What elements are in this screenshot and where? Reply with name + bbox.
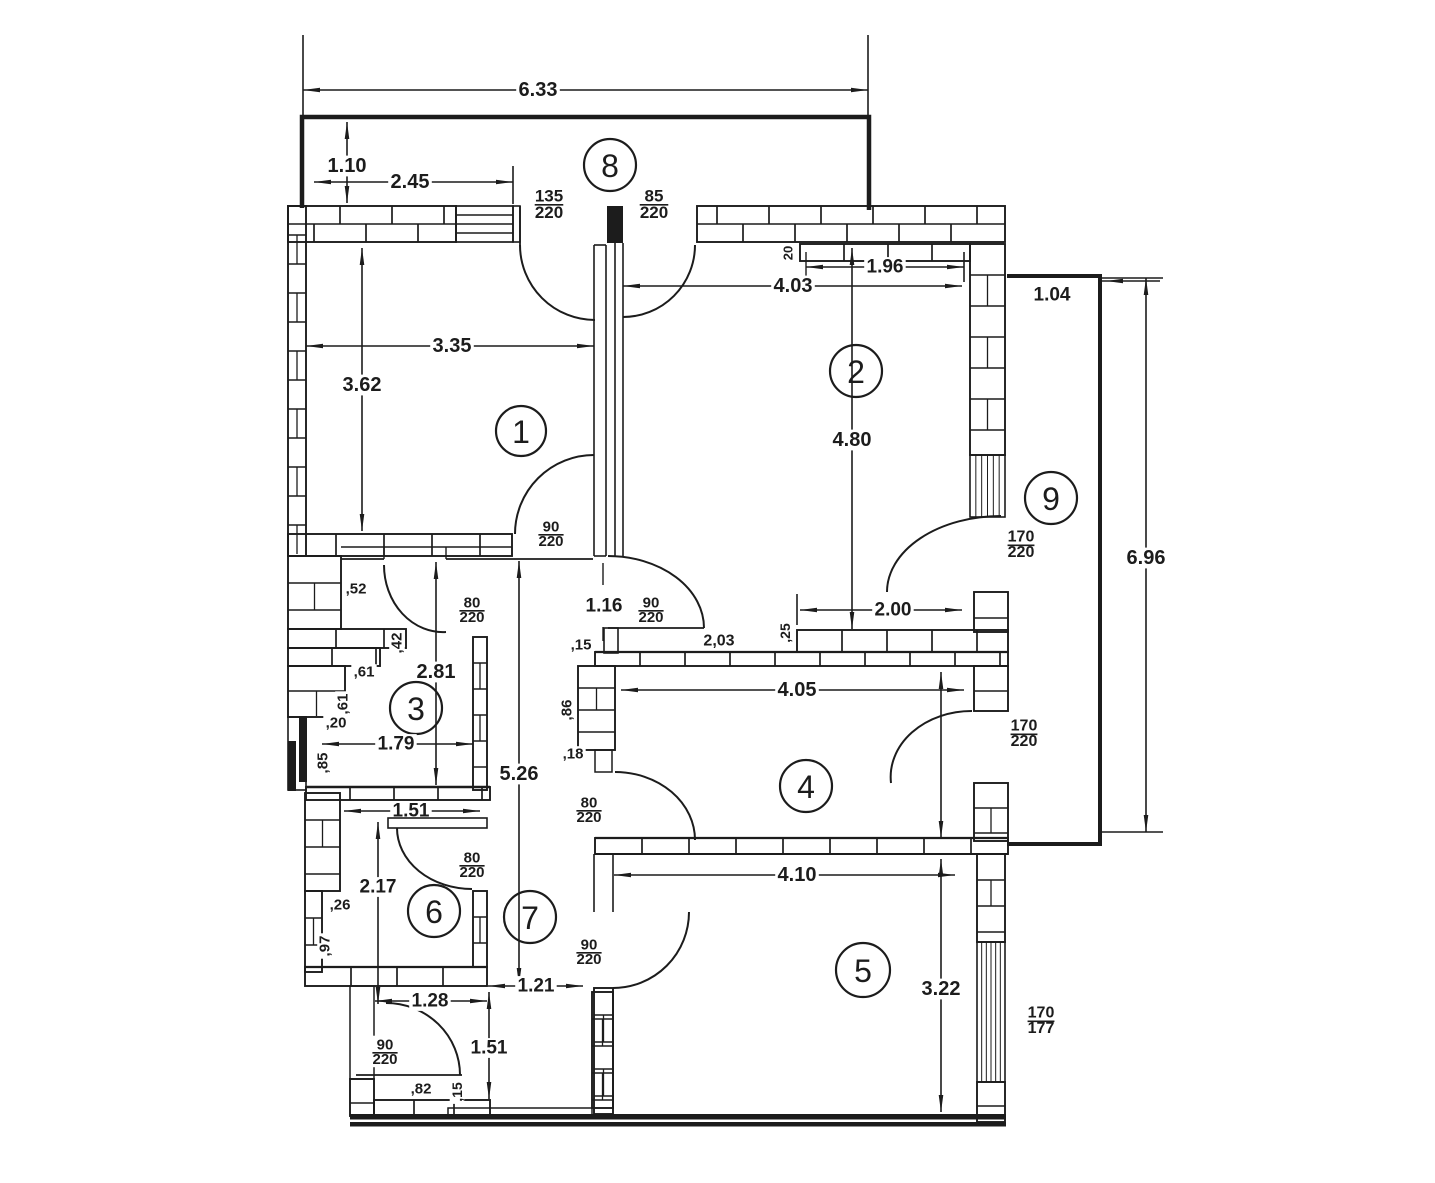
svg-text:6: 6	[425, 894, 443, 930]
svg-text:1: 1	[512, 414, 530, 450]
svg-text:5: 5	[854, 953, 872, 989]
svg-text:2,03: 2,03	[703, 633, 734, 650]
svg-text:220: 220	[459, 609, 484, 626]
svg-text:220: 220	[640, 203, 668, 222]
svg-text:3.35: 3.35	[433, 335, 472, 357]
svg-text:,85: ,85	[315, 753, 332, 774]
svg-text:220: 220	[535, 203, 563, 222]
svg-text:1.51: 1.51	[471, 1038, 508, 1059]
svg-text:170: 170	[1028, 1005, 1055, 1022]
svg-text:4: 4	[797, 769, 815, 805]
svg-text:3: 3	[407, 691, 425, 727]
svg-text:2: 2	[847, 354, 865, 390]
svg-text:6.33: 6.33	[519, 79, 558, 101]
svg-text:5.26: 5.26	[500, 763, 539, 785]
svg-text:2.45: 2.45	[391, 171, 430, 193]
svg-text:3.62: 3.62	[343, 374, 382, 396]
svg-text:,82: ,82	[411, 1081, 432, 1098]
svg-text:1.21: 1.21	[518, 976, 555, 997]
svg-text:1.79: 1.79	[378, 734, 415, 755]
svg-text:,15: ,15	[571, 637, 592, 654]
svg-text:,20: ,20	[326, 715, 347, 732]
svg-text:220: 220	[459, 864, 484, 881]
svg-text:220: 220	[576, 809, 601, 826]
svg-text:177: 177	[1028, 1020, 1055, 1037]
svg-text:220: 220	[1011, 733, 1038, 750]
svg-text:1.16: 1.16	[586, 596, 623, 617]
svg-text:,18: ,18	[563, 746, 584, 763]
svg-text:3.22: 3.22	[922, 978, 961, 1000]
svg-text:4.80: 4.80	[833, 429, 872, 451]
svg-text:4.05: 4.05	[778, 679, 817, 701]
svg-text:2.00: 2.00	[875, 600, 912, 621]
svg-text:220: 220	[1008, 544, 1035, 561]
svg-text:,42: ,42	[389, 633, 406, 654]
svg-text:220: 220	[638, 609, 663, 626]
svg-text:,15: ,15	[449, 1082, 465, 1102]
svg-text:,52: ,52	[346, 581, 367, 598]
svg-text:1.04: 1.04	[1034, 285, 1071, 306]
svg-text:,86: ,86	[559, 700, 576, 721]
svg-text:,25: ,25	[777, 623, 793, 643]
svg-text:220: 220	[538, 533, 563, 550]
svg-text:2.17: 2.17	[360, 877, 397, 898]
svg-text:9: 9	[1042, 481, 1060, 517]
svg-text:1.28: 1.28	[412, 991, 449, 1012]
svg-text:170: 170	[1008, 529, 1035, 546]
svg-text:220: 220	[372, 1051, 397, 1068]
svg-text:4.10: 4.10	[778, 864, 817, 886]
svg-text:220: 220	[576, 951, 601, 968]
svg-text:1.96: 1.96	[867, 257, 904, 278]
svg-text:7: 7	[521, 900, 539, 936]
svg-text:,97: ,97	[317, 936, 334, 957]
svg-text:20: 20	[781, 246, 796, 260]
svg-text:170: 170	[1011, 718, 1038, 735]
svg-text:,61: ,61	[354, 664, 375, 681]
svg-text:8: 8	[601, 148, 619, 184]
svg-text:4.03: 4.03	[774, 275, 813, 297]
svg-text:1.10: 1.10	[328, 155, 367, 177]
svg-text:2.81: 2.81	[417, 661, 456, 683]
svg-text:6.96: 6.96	[1127, 547, 1166, 569]
svg-text:,61: ,61	[335, 694, 352, 715]
svg-text:,26: ,26	[330, 897, 351, 914]
